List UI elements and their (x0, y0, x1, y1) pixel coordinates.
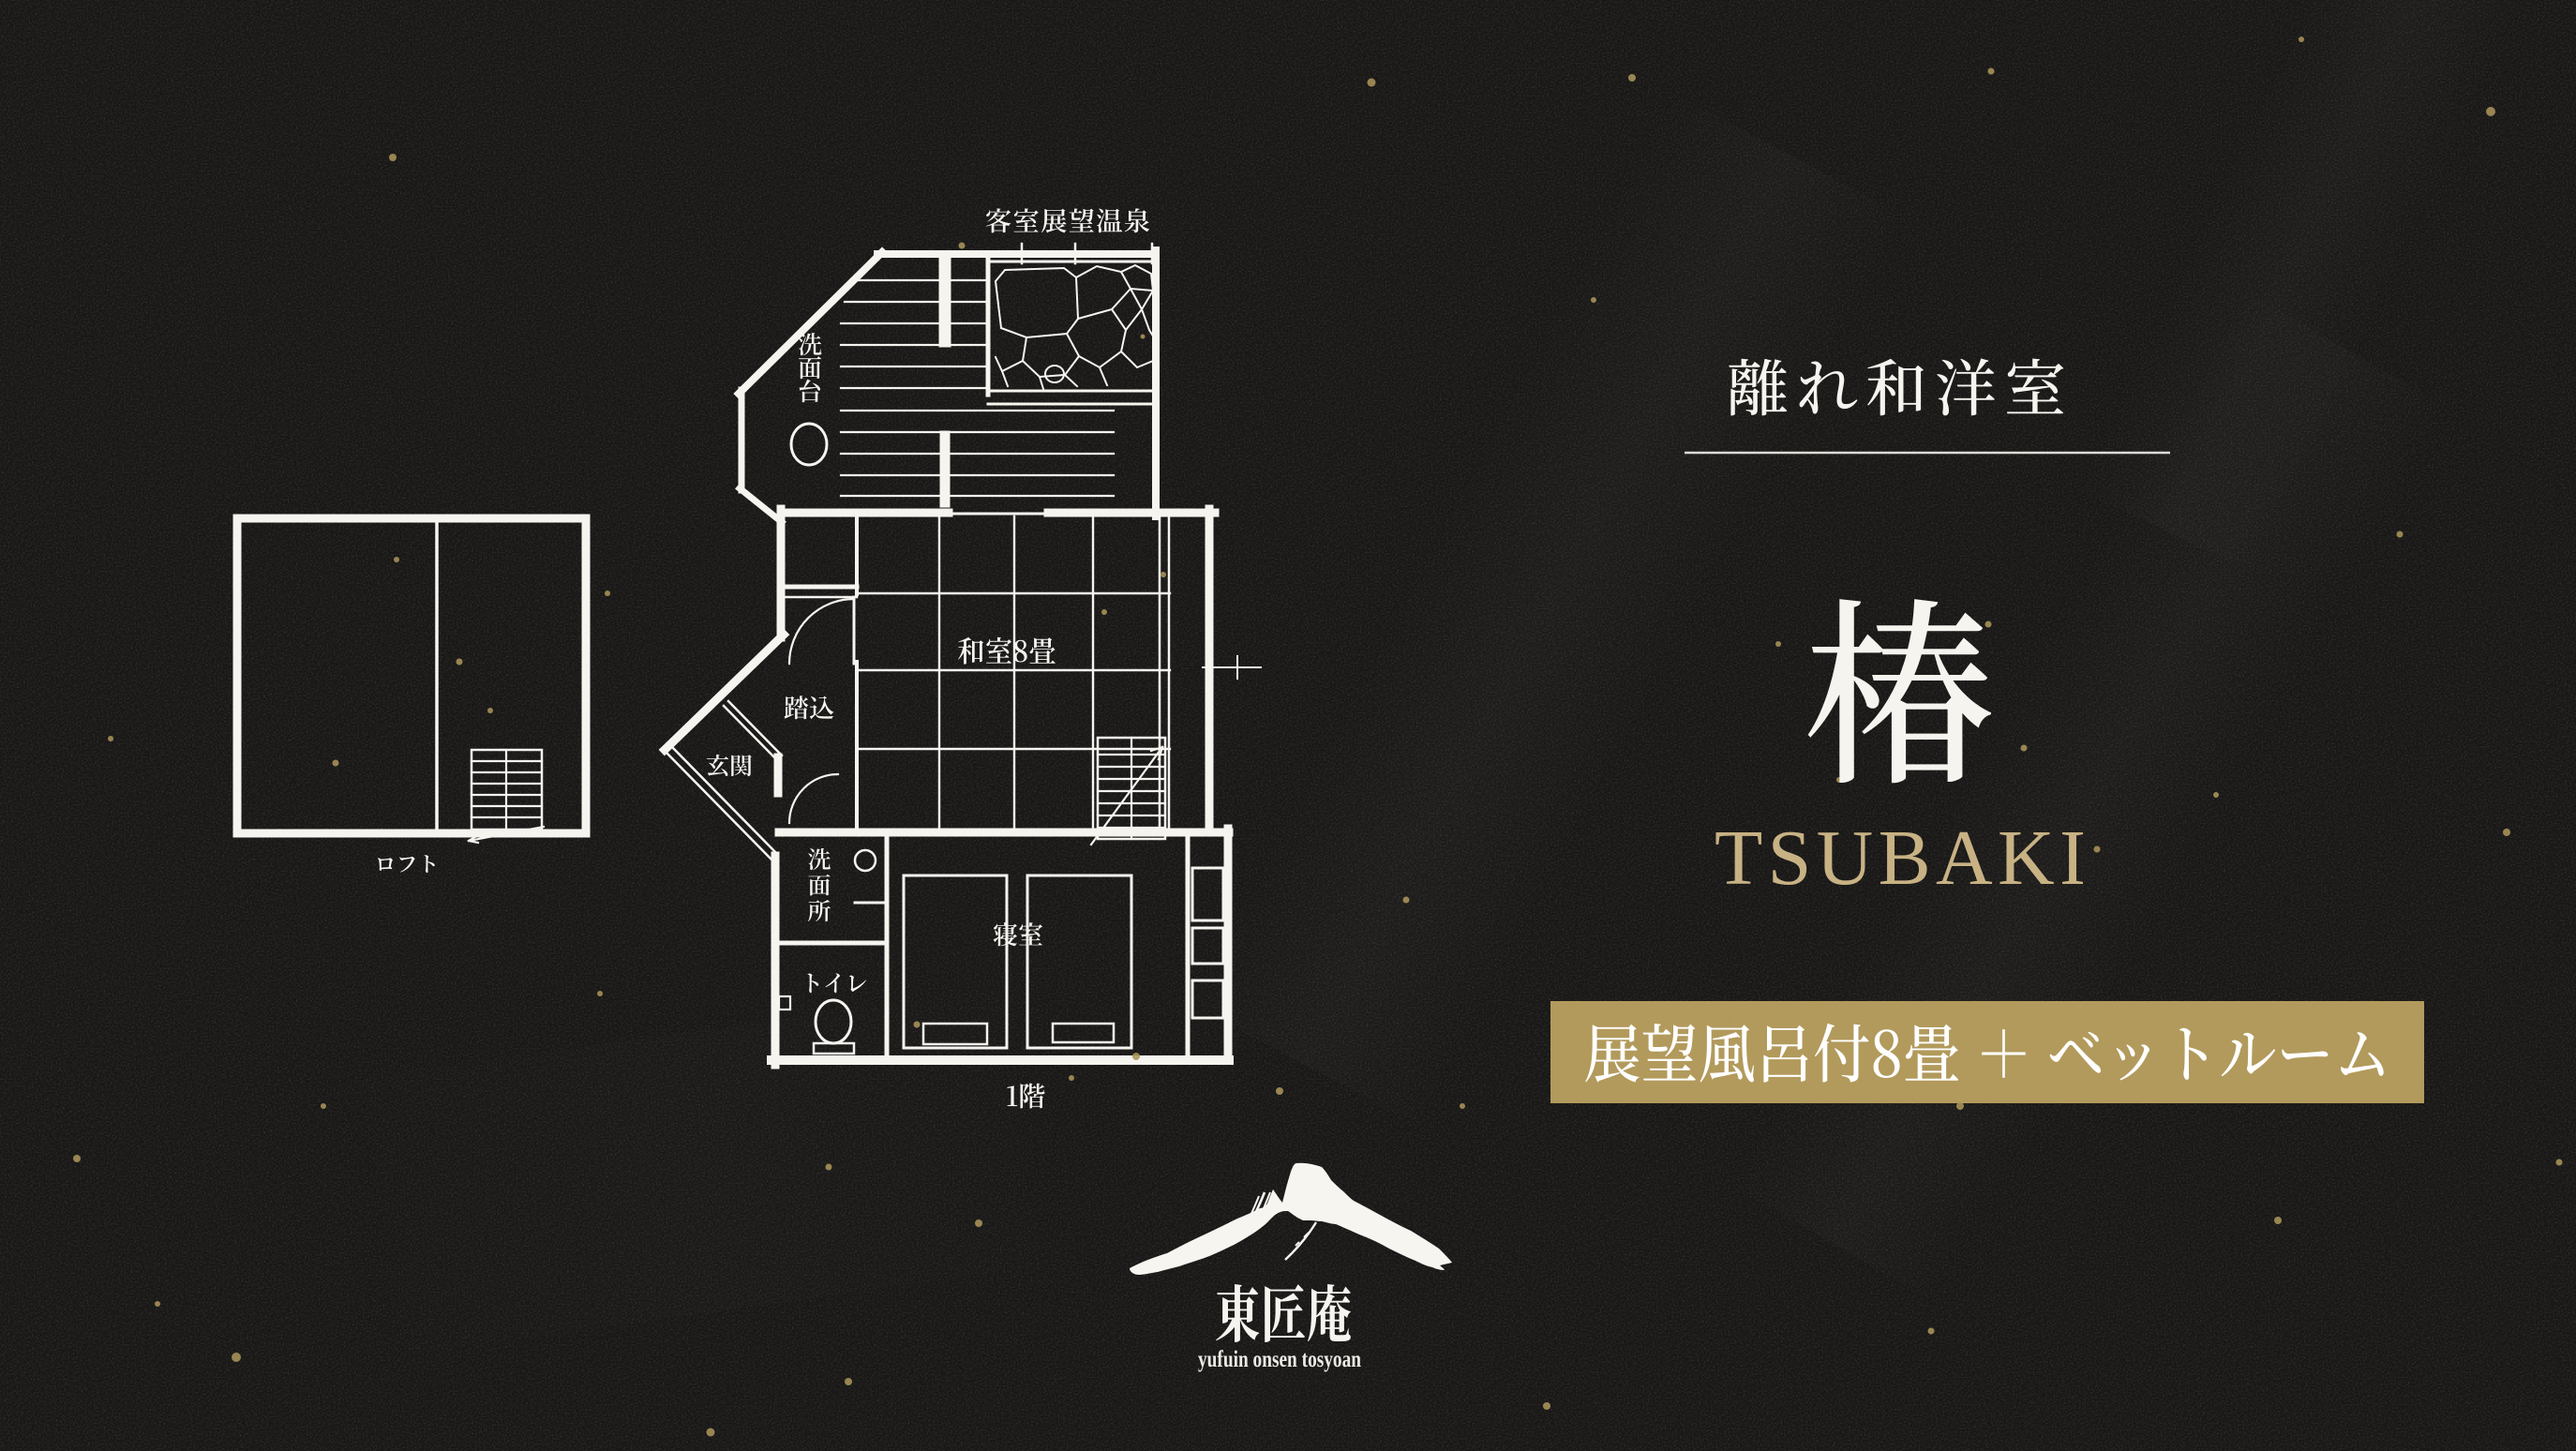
svg-text:yufuin onsen tosyoan: yufuin onsen tosyoan (1198, 1347, 1361, 1372)
svg-text:TSUBAKI: TSUBAKI (1715, 815, 2086, 902)
